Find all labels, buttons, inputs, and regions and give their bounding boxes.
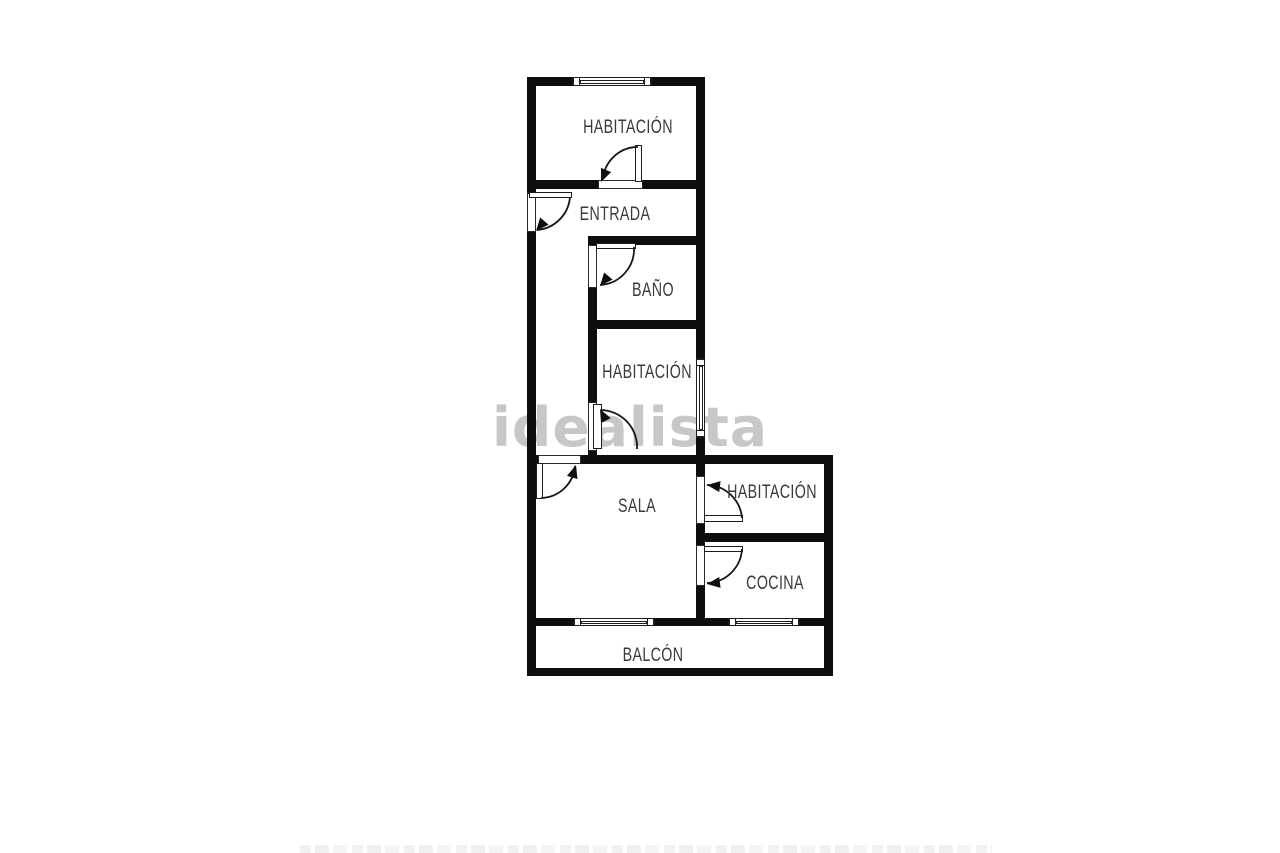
window-habitacion-middle — [696, 358, 705, 438]
room-label-habitacion-right: HABITACIÓN — [727, 482, 817, 504]
wall-segment — [588, 288, 597, 403]
door-swing-arrow — [536, 218, 549, 231]
wall-segment — [527, 86, 536, 193]
door-leaf-sala — [536, 463, 543, 499]
door-arc — [603, 147, 638, 179]
room-label-sala: SALA — [618, 496, 656, 518]
door-swing-arrow — [600, 273, 613, 286]
wall-segment — [696, 86, 705, 358]
wall-segment — [643, 180, 705, 189]
window-cap — [573, 77, 580, 86]
wall-segment — [800, 618, 833, 626]
wall-segment — [588, 320, 705, 329]
window-cap — [792, 618, 799, 626]
door-arc — [600, 247, 634, 285]
room-label-bano: BAÑO — [632, 280, 674, 302]
room-label-balcon: BALCÓN — [623, 645, 684, 667]
door-arc — [537, 197, 570, 230]
door-swing-arrow — [567, 465, 578, 479]
door-opening-bano — [588, 245, 597, 288]
door-opening-sala — [538, 455, 581, 464]
room-label-habitacion-middle: HABITACIÓN — [602, 362, 692, 384]
door-opening-entrada — [527, 193, 536, 232]
wall-segment — [696, 464, 705, 476]
wall-segment — [824, 455, 833, 676]
window-sala-balcon — [573, 618, 655, 626]
room-label-entrada: ENTRADA — [580, 204, 651, 226]
door-leaf-habitacion-top — [635, 145, 642, 182]
room-label-habitacion-top: HABITACIÓN — [583, 117, 673, 139]
window-cocina-balcon — [728, 618, 800, 626]
window-cap — [696, 430, 705, 437]
door-leaf-entrada — [529, 192, 572, 198]
window-cap — [729, 618, 736, 626]
wall-segment — [655, 618, 728, 626]
window-pane — [580, 80, 644, 84]
wall-segment — [527, 618, 573, 626]
door-swing-arrow — [707, 481, 721, 492]
wall-segment — [527, 180, 598, 189]
window-pane — [581, 621, 647, 624]
door-swing-arrow — [707, 577, 721, 588]
door-leaf-habitacion-right — [704, 515, 743, 522]
window-cap — [647, 618, 654, 626]
window-cap — [644, 77, 651, 86]
room-label-cocina: COCINA — [746, 573, 804, 595]
wall-segment — [527, 668, 833, 676]
door-leaf-habitacion-middle — [593, 404, 602, 449]
door-leaf-cocina — [704, 546, 743, 552]
wall-segment — [696, 533, 833, 542]
window-pane — [736, 621, 792, 624]
door-leaf-bano — [596, 243, 636, 249]
door-arc — [707, 549, 742, 583]
cropped-bottom-text — [300, 845, 992, 853]
floor-plan: idealista HABITACIÓ — [0, 0, 1280, 853]
window-cap — [574, 618, 581, 626]
wall-segment — [527, 232, 536, 676]
window-habitacion-top — [572, 77, 652, 86]
window-pane — [699, 366, 703, 430]
window-cap — [696, 359, 705, 366]
wall-segment — [580, 455, 833, 464]
door-arc — [541, 466, 575, 498]
